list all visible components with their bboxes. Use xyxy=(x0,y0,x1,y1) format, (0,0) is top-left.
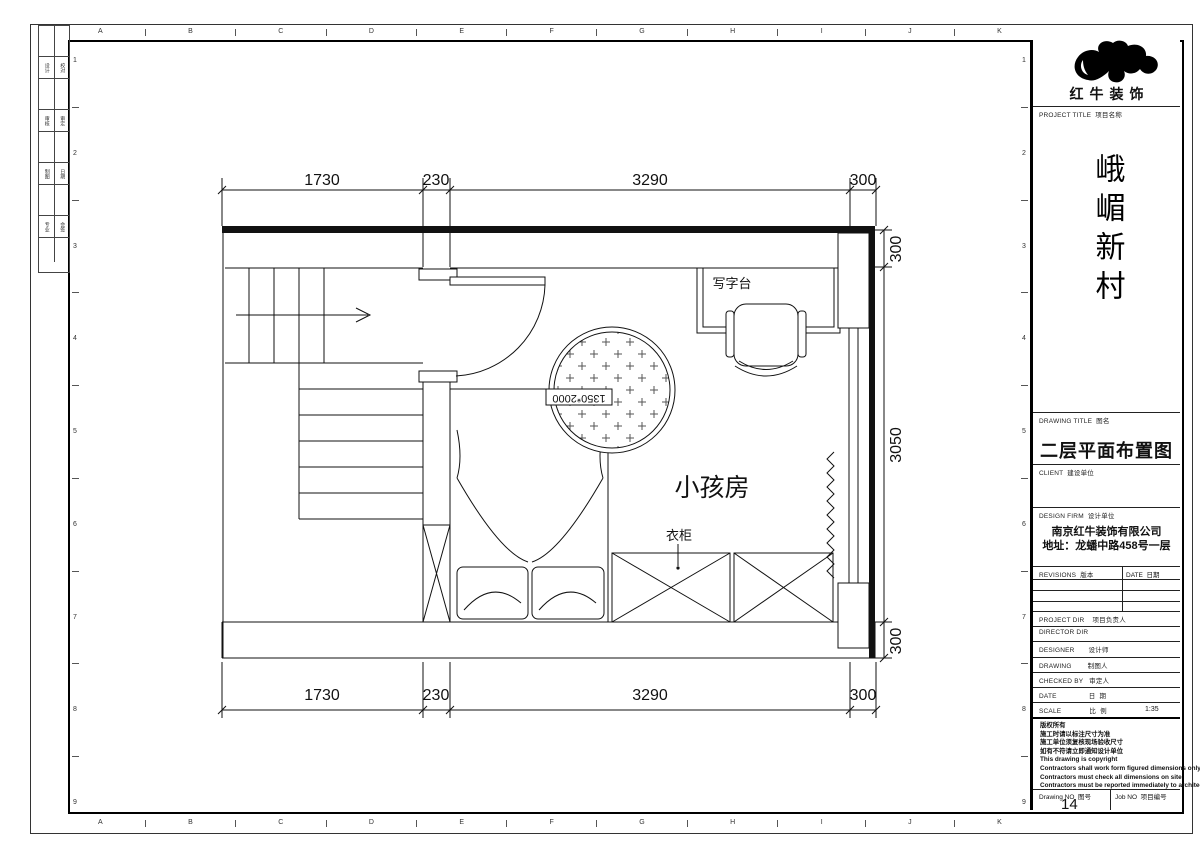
note-line: 施工时请以标注尺寸为准 xyxy=(1040,731,1200,740)
chair-armrest-right xyxy=(798,311,806,357)
drawing-title-label: DRAWING TITLE 图名 xyxy=(1039,415,1110,425)
staircase xyxy=(225,268,423,519)
dim-text: 230 xyxy=(423,687,450,704)
bed-size-label: 1350*2000 xyxy=(552,392,605,404)
dim-text: 1730 xyxy=(304,687,340,704)
right-wall xyxy=(869,226,875,658)
project-title-section: PROJECT TITLE 项目名称 峨嵋新村 xyxy=(1033,107,1180,413)
dim-text: 300 xyxy=(850,172,877,189)
chair-seat xyxy=(734,304,798,366)
scale-row: SCALE 比 例 1:35 xyxy=(1033,703,1180,717)
drawing-sheet: ABCDEFGHIJK ABCDEFGHIJK 123456789 123456… xyxy=(0,0,1200,844)
dim-text: 1730 xyxy=(304,172,340,189)
note-line: 如有不符请立即通知设计单位 xyxy=(1040,748,1200,757)
door-swing-arc xyxy=(456,285,545,376)
wardrobe xyxy=(612,544,833,622)
scale-value: 1:35 xyxy=(1145,706,1159,713)
designer-row: DESIGNER 设计师 xyxy=(1033,642,1180,658)
window-pier-top xyxy=(838,233,869,328)
note-line: 版权所有 xyxy=(1040,722,1200,731)
drawing-title-section: DRAWING TITLE 图名 二层平面布置图 xyxy=(1033,413,1180,465)
desk-label: 写字台 xyxy=(712,276,751,291)
drawing-number-section: Drawing NO 图号 14 Job NO 项目编号 xyxy=(1033,790,1180,810)
stair-treads-lower xyxy=(299,389,423,519)
dim-text: 300 xyxy=(850,687,877,704)
scale-label: SCALE 比 例 xyxy=(1039,705,1107,715)
checked-by-row: CHECKED BY 审定人 xyxy=(1033,673,1180,688)
note-line: This drawing is copyright xyxy=(1040,756,1200,765)
note-line: Contractors shall work form figured dime… xyxy=(1040,765,1200,774)
note-line: Contractors must check all dimensions on… xyxy=(1040,774,1200,783)
pillow-left xyxy=(457,567,528,619)
title-block: 红牛装饰 PROJECT TITLE 项目名称 峨嵋新村 DRAWING TIT… xyxy=(1030,40,1180,810)
door-leaf xyxy=(450,277,545,285)
director-dir-row: DIRECTOR DIR xyxy=(1033,627,1180,642)
drawing-no-divider xyxy=(1110,790,1111,810)
wardrobe-leader-dot xyxy=(676,566,679,569)
checked-by-label: CHECKED BY 审定人 xyxy=(1039,675,1109,685)
client-section: CLIENT 建设单位 xyxy=(1033,465,1180,508)
date-row: DATE 日 期 xyxy=(1033,688,1180,703)
project-dir-row: PROJECT DIR 项目负责人 xyxy=(1033,612,1180,627)
drawing-label: DRAWING 制图人 xyxy=(1039,660,1108,670)
project-dir-label: PROJECT DIR 项目负责人 xyxy=(1039,614,1126,624)
job-no-label: Job NO 项目编号 xyxy=(1115,791,1167,801)
project-name-text: 峨嵋新村 xyxy=(1085,153,1129,309)
drawing-title: 二层平面布置图 xyxy=(1033,437,1180,463)
brand-name: 红牛装饰 xyxy=(1033,84,1180,104)
revisions-row-line xyxy=(1033,590,1180,591)
project-name: 峨嵋新村 xyxy=(1033,153,1180,309)
revisions-section: REVISIONS 版本 DATE 日期 xyxy=(1033,567,1180,612)
copyright-notes: 版权所有施工时请以标注尺寸为准施工单位须复核现场验收尺寸如有不符请立即通知设计单… xyxy=(1040,722,1200,791)
chair-armrest-left xyxy=(726,311,734,357)
dim-text: 3050 xyxy=(888,427,905,463)
design-firm-label: DESIGN FIRM 设计单位 xyxy=(1039,510,1115,520)
bottom-wall xyxy=(222,622,875,658)
bed-size-tag: 1350*2000 xyxy=(546,389,612,405)
note-line: 施工单位须复核现场验收尺寸 xyxy=(1040,739,1200,748)
desk-chair xyxy=(726,304,806,376)
design-firm-section: DESIGN FIRM 设计单位 南京红牛装饰有限公司 地址：龙蟠中路458号一… xyxy=(1033,508,1180,567)
designer-label: DESIGNER 设计师 xyxy=(1039,644,1109,654)
date-label: DATE 日 期 xyxy=(1039,690,1106,700)
door-jamb-bottom xyxy=(419,371,457,382)
dim-text: 3290 xyxy=(632,172,668,189)
stair-direction-arrow xyxy=(236,308,370,322)
notes-section: 版权所有施工时请以标注尺寸为准施工单位须复核现场验收尺寸如有不符请立即通知设计单… xyxy=(1033,717,1180,790)
pillow-right xyxy=(532,567,604,619)
drawing-row: DRAWING 制图人 xyxy=(1033,658,1180,673)
firm-address: 地址：龙蟠中路458号一层 xyxy=(1033,537,1180,553)
logo-section: 红牛装饰 xyxy=(1033,40,1180,107)
dim-ext-top xyxy=(222,178,876,267)
dim-text: 300 xyxy=(888,236,905,263)
revisions-row-line xyxy=(1033,601,1180,602)
redniu-logo-icon xyxy=(1033,40,1183,88)
revisions-date-label: DATE 日期 xyxy=(1126,569,1159,579)
room-label: 小孩房 xyxy=(674,474,749,502)
revisions-row-line xyxy=(1033,579,1180,580)
dim-text: 300 xyxy=(888,628,905,655)
top-wall xyxy=(222,226,875,233)
drawing-no-value: 14 xyxy=(1061,796,1078,813)
window-glazing xyxy=(845,328,862,583)
dim-text: 3290 xyxy=(632,687,668,704)
revisions-label: REVISIONS 版本 xyxy=(1039,569,1094,579)
director-dir-label: DIRECTOR DIR xyxy=(1039,629,1088,636)
project-title-label: PROJECT TITLE 项目名称 xyxy=(1039,109,1122,119)
floor-plan: 1350*2000 xyxy=(0,0,1030,844)
interior-wall xyxy=(423,382,450,525)
wardrobe-label: 衣柜 xyxy=(666,528,692,543)
window-pier-bottom xyxy=(838,583,869,648)
dim-text: 230 xyxy=(423,172,450,189)
client-label: CLIENT 建设单位 xyxy=(1039,467,1094,477)
